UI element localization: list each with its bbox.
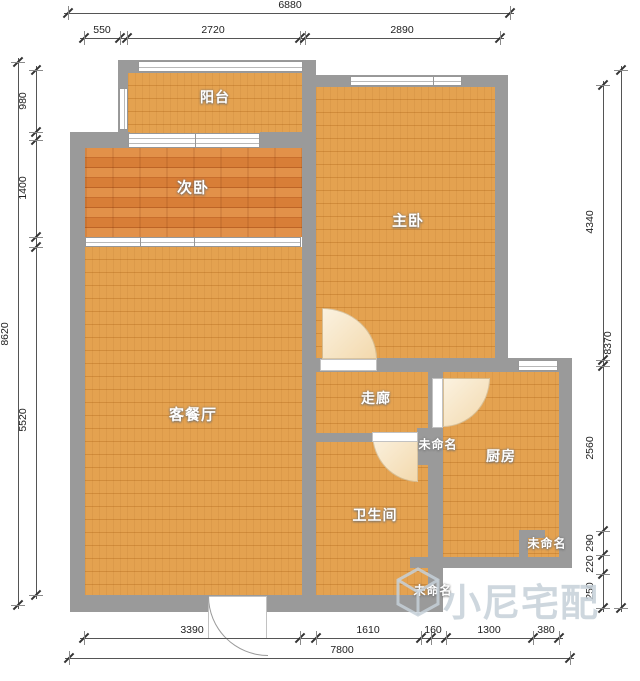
room-label: 客餐厅	[169, 404, 217, 425]
room-label: 卫生间	[353, 505, 398, 525]
dim-extension	[84, 631, 85, 645]
dim-extension	[120, 31, 121, 45]
dim-extension	[29, 70, 43, 71]
dim-label: 3390	[180, 624, 203, 636]
window	[138, 61, 303, 72]
dim-line	[18, 58, 19, 609]
wall	[302, 433, 372, 442]
floorplan-canvas: 阳台次卧主卧客餐厅走廊未命名厨房卫生间未命名未命名688055027202890…	[0, 0, 640, 681]
dim-extension	[559, 631, 560, 645]
window-line	[86, 242, 300, 243]
dim-label: 8620	[0, 322, 11, 345]
dim-extension	[29, 237, 43, 238]
dim-extension	[596, 531, 610, 532]
dim-extension	[316, 631, 317, 645]
dim-label: 160	[424, 624, 442, 636]
door-threshold	[432, 378, 443, 428]
dim-label: 550	[93, 24, 111, 36]
dim-extension	[596, 366, 610, 367]
dim-label: 1300	[477, 624, 500, 636]
entry-door-arc	[208, 596, 268, 656]
window-line	[139, 67, 302, 68]
dim-line	[621, 66, 622, 612]
dim-label: 980	[17, 92, 29, 110]
window	[518, 360, 558, 371]
dim-extension	[596, 555, 610, 556]
dim-extension	[533, 631, 534, 645]
dim-label: 220	[584, 555, 596, 573]
room-label: 主卧	[392, 210, 424, 231]
cube-logo	[395, 567, 441, 617]
window-line	[129, 138, 259, 139]
window-divider	[433, 77, 434, 85]
dim-line	[80, 638, 563, 639]
watermark-text: 小尼宅配	[443, 572, 599, 627]
dim-label: 2720	[201, 24, 224, 36]
dim-extension	[29, 140, 43, 141]
window-line	[129, 143, 259, 144]
dim-label: 4340	[584, 210, 596, 233]
window	[350, 76, 462, 86]
wall	[495, 75, 508, 365]
dim-extension	[11, 62, 25, 63]
window-divider	[140, 238, 141, 246]
dim-extension	[127, 31, 128, 45]
window	[128, 133, 260, 148]
dim-extension	[300, 631, 301, 645]
wall	[70, 132, 85, 612]
wall	[302, 60, 316, 612]
window-line	[124, 89, 125, 129]
dim-extension	[596, 608, 610, 609]
dim-extension	[596, 85, 610, 86]
room-label: 未命名	[527, 535, 566, 552]
dim-extension	[69, 651, 70, 665]
dim-line	[36, 66, 37, 599]
dim-label: 380	[537, 624, 555, 636]
dim-label: 1400	[17, 176, 29, 199]
dim-extension	[68, 6, 69, 20]
dim-label: 290	[584, 534, 596, 552]
dim-extension	[570, 651, 571, 665]
dim-extension	[305, 31, 306, 45]
dim-extension	[596, 574, 610, 575]
dim-extension	[84, 31, 85, 45]
dim-extension	[29, 595, 43, 596]
dim-extension	[29, 247, 43, 248]
dim-label: 7800	[330, 644, 353, 656]
window-divider	[195, 134, 196, 147]
window-line	[351, 81, 461, 82]
room-label: 次卧	[177, 177, 209, 198]
room-label: 厨房	[486, 446, 516, 466]
dim-extension	[614, 608, 628, 609]
dim-label: 2890	[390, 24, 413, 36]
window-divider	[194, 238, 195, 246]
dim-extension	[29, 132, 43, 133]
dim-extension	[421, 631, 422, 645]
room-label: 走廊	[361, 388, 391, 408]
dim-label: 5520	[17, 408, 29, 431]
dim-extension	[500, 31, 501, 45]
door-threshold	[320, 359, 377, 371]
dim-extension	[510, 6, 511, 20]
dim-extension	[614, 70, 628, 71]
door-threshold	[372, 432, 418, 442]
dim-line	[80, 38, 504, 39]
dim-label: 1610	[356, 624, 379, 636]
dim-extension	[11, 605, 25, 606]
dim-extension	[446, 631, 447, 645]
window	[119, 88, 128, 130]
dim-line	[65, 658, 574, 659]
room-label: 未命名	[418, 436, 457, 453]
dim-label: 6880	[278, 0, 301, 11]
window	[85, 237, 301, 247]
dim-line	[603, 81, 604, 612]
window-line	[519, 366, 557, 367]
dim-label: 2560	[584, 436, 596, 459]
dim-label: 250	[584, 582, 596, 600]
room-label: 阳台	[200, 87, 230, 107]
dim-line	[64, 13, 514, 14]
